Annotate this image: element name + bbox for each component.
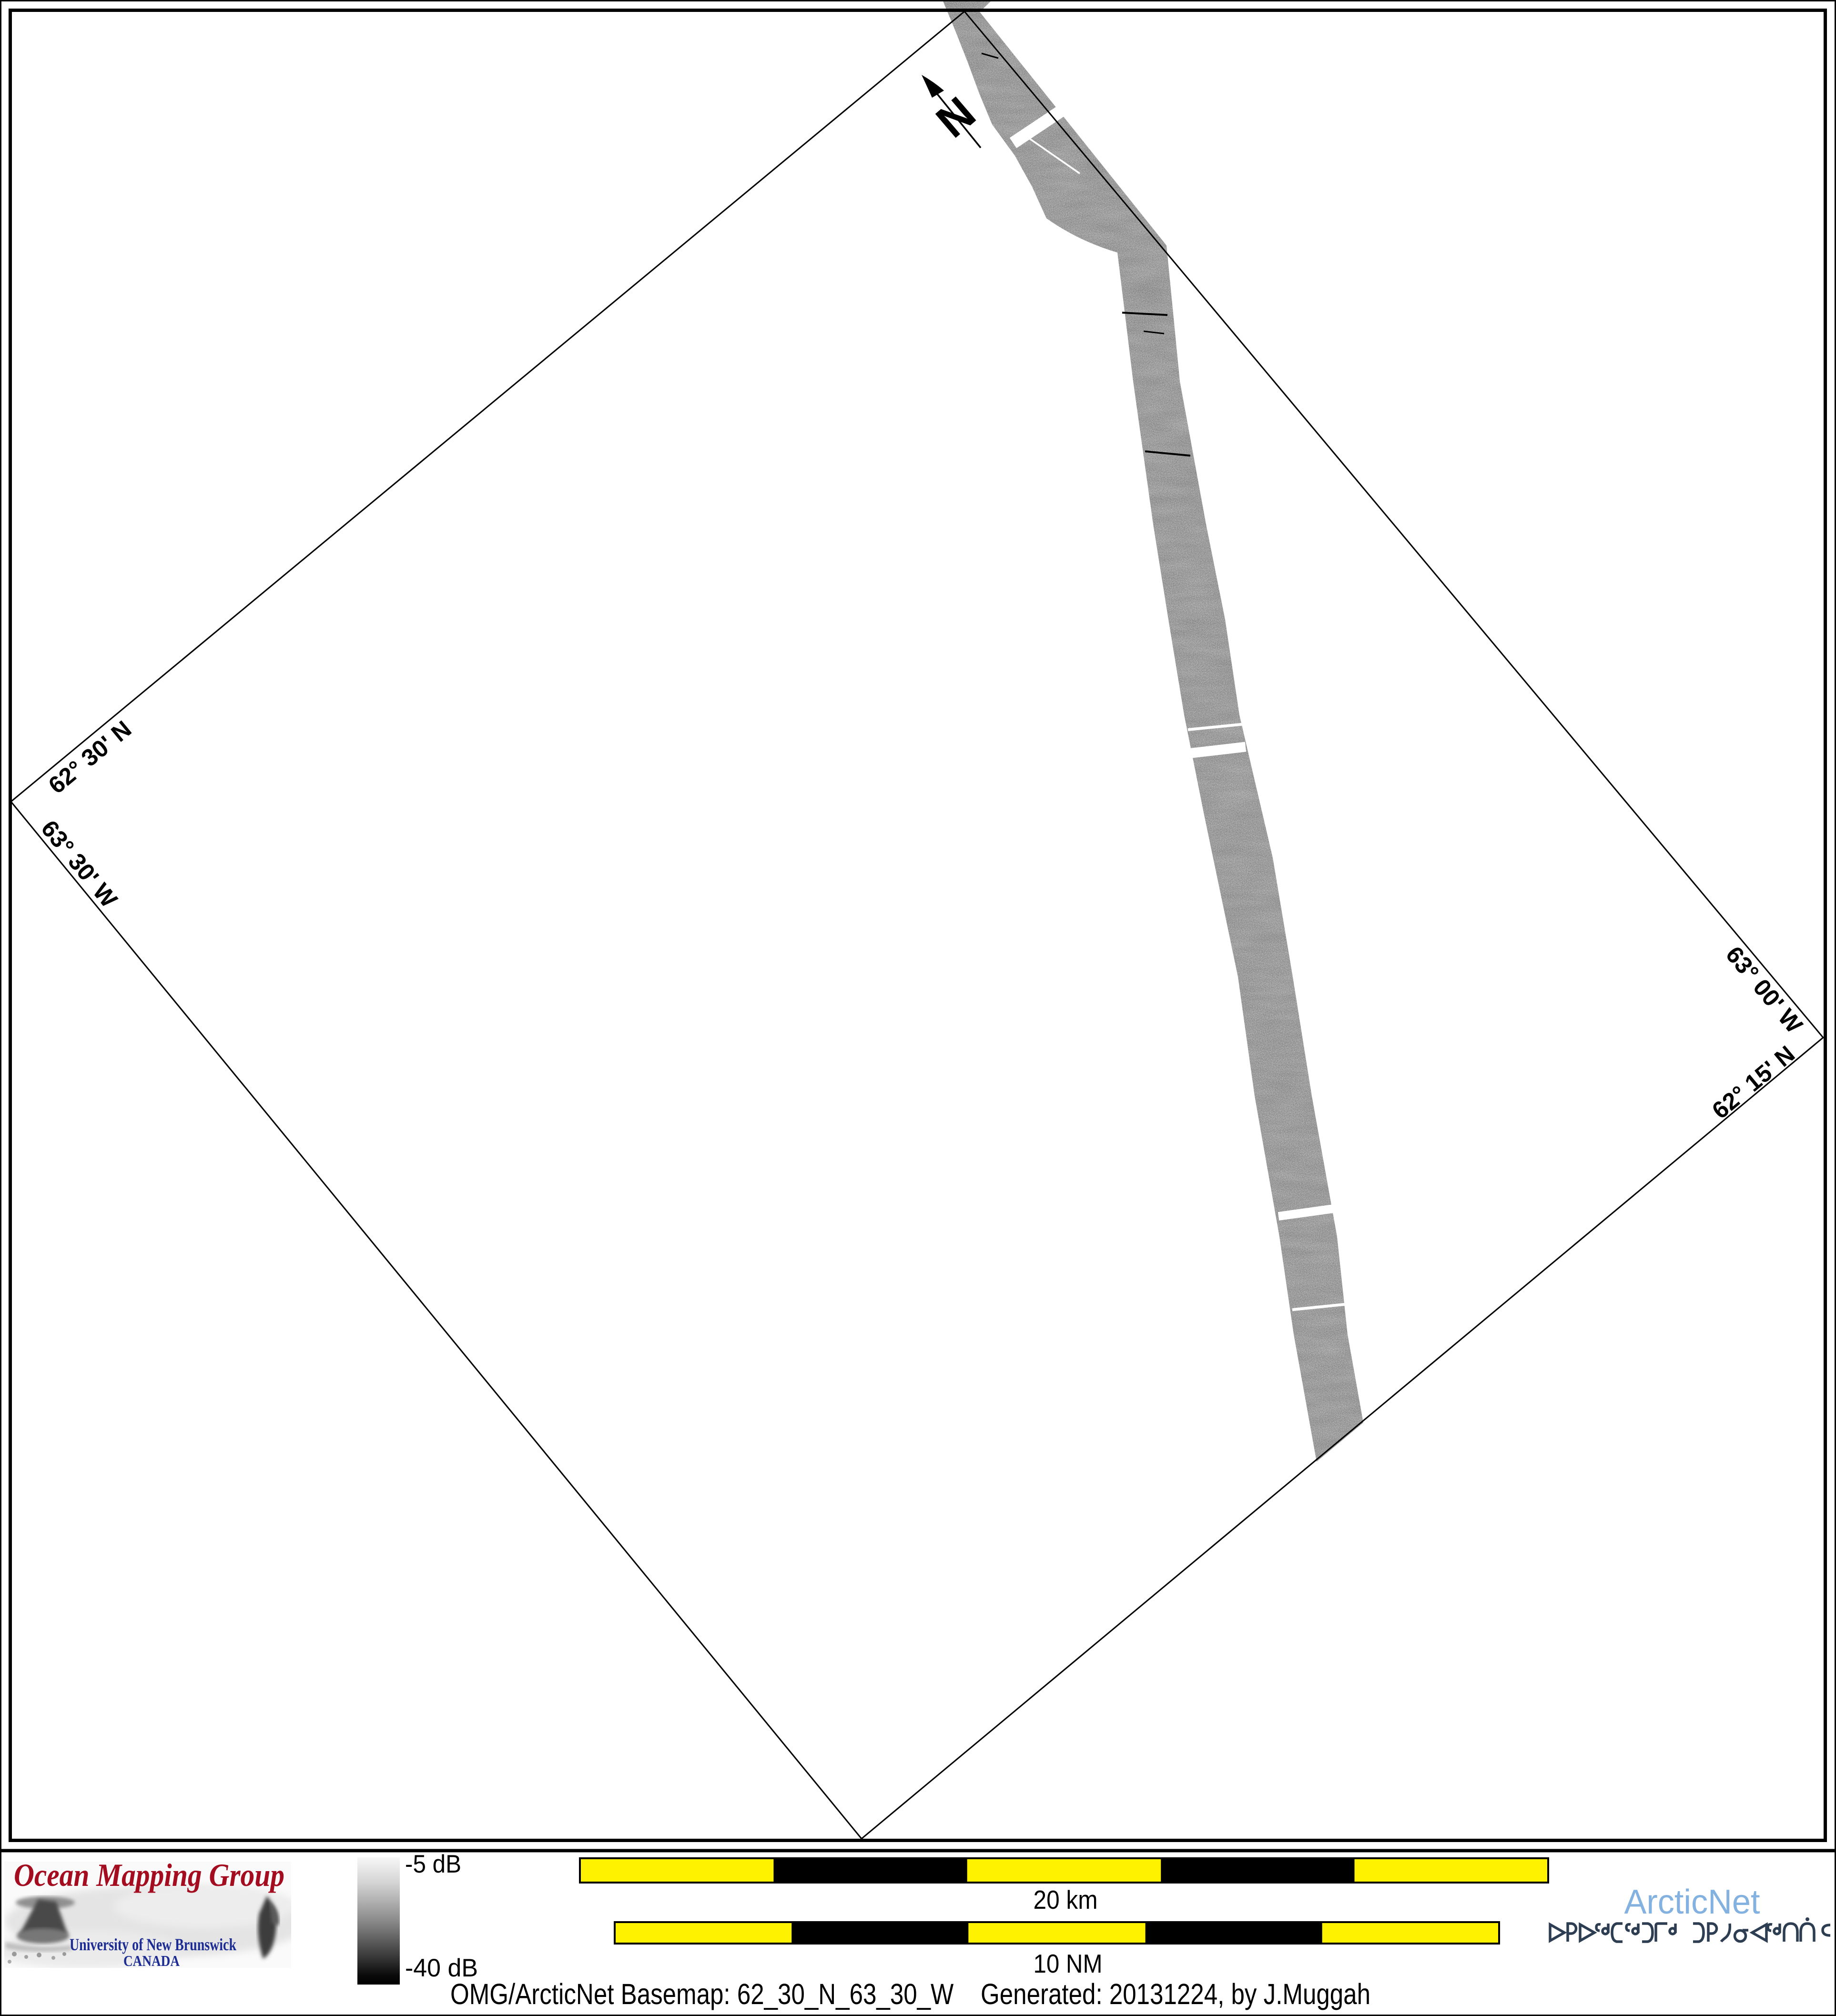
svg-text:CANADA: CANADA xyxy=(123,1952,180,1969)
svg-text:University of New Brunswick: University of New Brunswick xyxy=(70,1935,236,1954)
svg-text:OMG/ArcticNet Basemap: 62_30_N: OMG/ArcticNet Basemap: 62_30_N_63_30_W G… xyxy=(450,1978,1370,2010)
svg-text:Ocean Mapping Group: Ocean Mapping Group xyxy=(14,1857,284,1893)
svg-text:ArcticNet: ArcticNet xyxy=(1624,1883,1760,1921)
svg-text:-5 dB: -5 dB xyxy=(405,1850,461,1878)
svg-text:10 NM: 10 NM xyxy=(1034,1949,1103,1978)
svg-text:20 km: 20 km xyxy=(1034,1885,1098,1914)
